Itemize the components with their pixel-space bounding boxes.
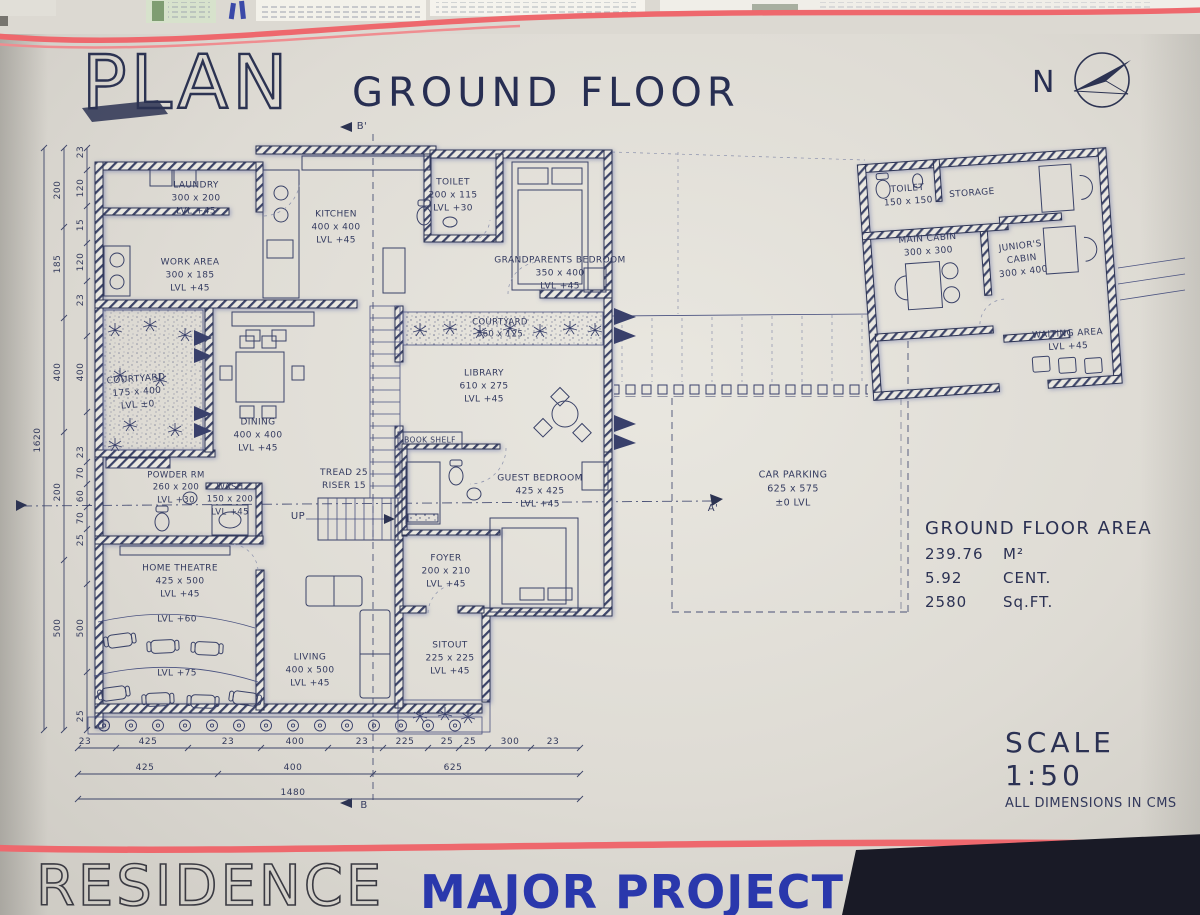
svg-text:200: 200 xyxy=(53,483,63,502)
svg-text:400: 400 xyxy=(53,363,63,382)
svg-text:23: 23 xyxy=(79,737,91,747)
svg-text:25: 25 xyxy=(464,737,476,747)
svg-text:25: 25 xyxy=(441,737,453,747)
svg-text:500: 500 xyxy=(76,619,86,638)
svg-text:1480: 1480 xyxy=(281,788,306,798)
svg-text:425: 425 xyxy=(136,763,155,773)
scale-block: SCALE 1:50 ALL DIMENSIONS IN CMS xyxy=(1005,726,1200,811)
svg-text:200: 200 xyxy=(53,181,63,200)
svg-text:23: 23 xyxy=(76,146,86,158)
svg-text:23: 23 xyxy=(222,737,234,747)
svg-text:25: 25 xyxy=(76,534,86,546)
north-arrow-icon: N xyxy=(1032,53,1131,107)
scanned-floor-plan-photo: { "sheet": { "plan_title": "PLAN", "floo… xyxy=(0,0,1200,915)
svg-text:15: 15 xyxy=(76,219,86,231)
svg-text:120: 120 xyxy=(76,179,86,198)
dimensions-note: ALL DIMENSIONS IN CMS xyxy=(1005,796,1200,811)
office-entry-steps xyxy=(1118,258,1185,300)
svg-text:425: 425 xyxy=(139,737,158,747)
area-row: 5.92CENT. xyxy=(925,569,1152,587)
staircase xyxy=(306,306,400,540)
svg-text:300: 300 xyxy=(501,737,520,747)
dark-corner-object xyxy=(842,834,1200,915)
svg-text:400: 400 xyxy=(284,763,303,773)
area-row: 2580Sq.FT. xyxy=(925,593,1152,611)
dimension-lines: 2342523400232252525300234254006251480231… xyxy=(33,145,583,802)
office-walls xyxy=(857,148,1122,401)
svg-text:23: 23 xyxy=(356,737,368,747)
svg-text:1620: 1620 xyxy=(33,428,43,453)
walkway-pergola xyxy=(612,152,870,397)
svg-text:23: 23 xyxy=(547,737,559,747)
scale-label: SCALE 1:50 xyxy=(1005,726,1200,792)
svg-text:400: 400 xyxy=(286,737,305,747)
courtyards xyxy=(103,310,603,451)
north-label: N xyxy=(1032,65,1054,100)
project-title: MAJOR PROJECT xyxy=(420,865,844,915)
area-summary: GROUND FLOOR AREA 239.76M²5.92CENT.2580S… xyxy=(925,518,1152,611)
residence-title: RESIDENCE xyxy=(36,854,384,915)
svg-text:120: 120 xyxy=(76,253,86,272)
area-row: 239.76M² xyxy=(925,545,1152,563)
svg-text:225: 225 xyxy=(396,737,415,747)
floor-title: GROUND FLOOR xyxy=(352,70,740,116)
svg-text:23: 23 xyxy=(76,446,86,458)
svg-text:70: 70 xyxy=(76,467,86,479)
svg-text:25: 25 xyxy=(76,710,86,722)
svg-text:60: 60 xyxy=(76,490,86,502)
area-summary-rows: 239.76M²5.92CENT.2580Sq.FT. xyxy=(925,545,1152,611)
svg-text:70: 70 xyxy=(76,512,86,524)
svg-text:400: 400 xyxy=(76,363,86,382)
svg-text:23: 23 xyxy=(76,294,86,306)
svg-text:500: 500 xyxy=(53,619,63,638)
svg-text:625: 625 xyxy=(444,763,463,773)
area-summary-title: GROUND FLOOR AREA xyxy=(925,518,1152,539)
svg-text:185: 185 xyxy=(53,255,63,274)
